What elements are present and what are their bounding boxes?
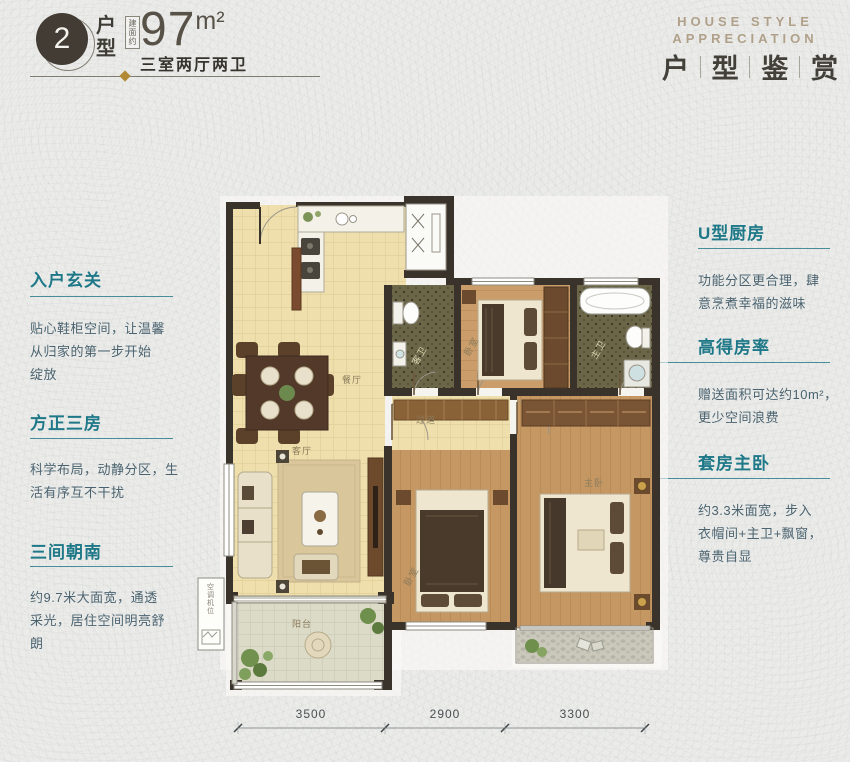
underline	[30, 566, 173, 567]
underline	[698, 248, 830, 249]
room-label: 餐厅	[342, 374, 362, 385]
bedroom-top	[462, 287, 568, 388]
room-label: 主卧	[584, 477, 604, 488]
layout-spec: 三室两厅两卫	[140, 51, 248, 75]
english-caption: HOUSE STYLE APPRECIATION	[655, 13, 835, 47]
annotation-title: 三间朝南	[30, 538, 185, 563]
annotation-title: 入户玄关	[30, 266, 185, 291]
floor-plan: 餐厅客厅阳台过道卧室卧室主卧客卫主卫空调机位	[190, 190, 670, 735]
annotation-kitchen: U型厨房 功能分区更合理，肆 意烹煮幸福的滋味	[698, 219, 843, 315]
dimension-value: 3500	[296, 707, 327, 721]
room-label: 空调机位	[207, 582, 215, 615]
dining-room	[232, 342, 334, 444]
room-label: 阳台	[292, 618, 312, 629]
annotation-south-facing: 三间朝南 约9.7米大面宽，通透 采光，居住空间明亮舒 朗	[30, 538, 185, 655]
underline	[30, 438, 173, 439]
chinese-caption: 户 型 鉴 赏	[662, 47, 838, 86]
dimension-scale: 350029003300	[228, 698, 656, 748]
annotation-entry-hall: 入户玄关 贴心鞋柜空间，让温馨 从归家的第一步开始 绽放	[30, 266, 185, 386]
room-label: 客厅	[292, 445, 312, 456]
area-value: 97m²	[140, 2, 225, 57]
area-unit: m²	[195, 7, 224, 35]
leader-line	[650, 362, 830, 363]
dimension-value: 2900	[430, 707, 461, 721]
leader-line	[645, 478, 830, 479]
poster: 2 户 型 建面约 97m² 三室两厅两卫 HOUSE STYLE APPREC…	[0, 0, 850, 762]
annotation-master-suite: 套房主卧 约3.3米面宽，步入 衣帽间+主卫+飘窗， 尊贵自显	[698, 449, 843, 568]
underline	[30, 296, 173, 297]
unit-type-label: 户 型	[96, 15, 116, 61]
area-prefix-seal: 建面约	[125, 16, 140, 49]
divider-diamond-icon	[119, 70, 130, 81]
annotation-square-rooms: 方正三房 科学布局，动静分区，生 活有序互不干扰	[30, 409, 185, 504]
annotation-title: 方正三房	[30, 409, 185, 434]
header-divider	[30, 76, 320, 77]
unit-number: 2	[54, 22, 71, 56]
utility-shaft	[406, 204, 446, 270]
dimension-value: 3300	[560, 707, 591, 721]
annotation-efficiency: 高得房率 赠送面积可达约10m²， 更少空间浪费	[698, 333, 843, 429]
room-label: 过道	[416, 414, 436, 425]
unit-number-badge: 2	[36, 13, 88, 65]
